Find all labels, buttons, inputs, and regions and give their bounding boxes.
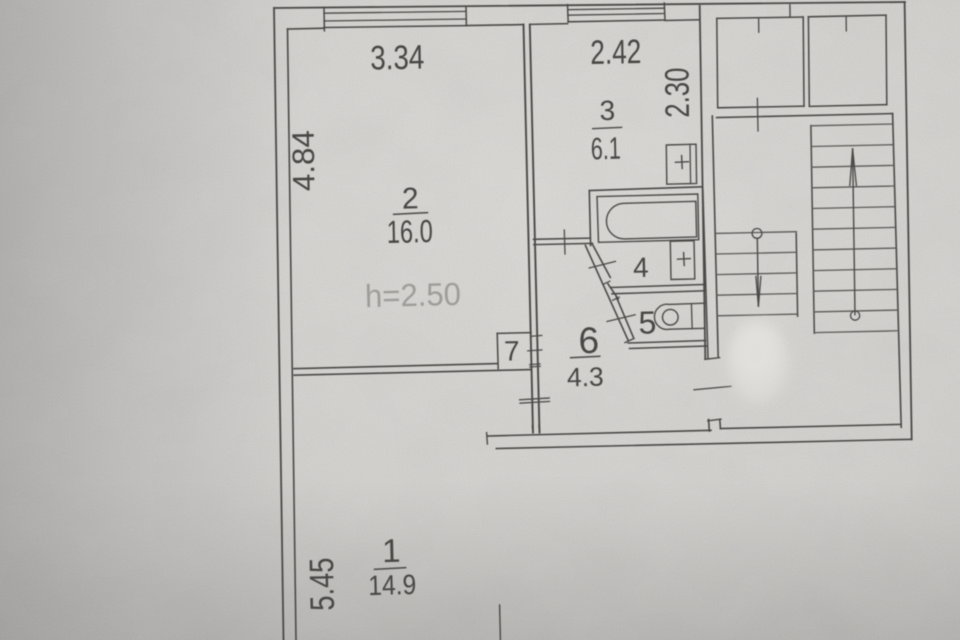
- svg-text:4.84: 4.84: [286, 130, 322, 192]
- svg-text:16.0: 16.0: [386, 213, 433, 250]
- svg-text:4: 4: [633, 252, 649, 283]
- svg-text:6.1: 6.1: [590, 131, 621, 167]
- svg-text:2.42: 2.42: [590, 33, 642, 72]
- svg-text:2.30: 2.30: [658, 67, 697, 117]
- svg-text:3.34: 3.34: [370, 39, 425, 78]
- svg-text:2: 2: [402, 182, 419, 215]
- svg-text:1: 1: [382, 532, 401, 569]
- svg-text:5.45: 5.45: [303, 557, 342, 611]
- svg-text:6: 6: [578, 320, 599, 361]
- svg-text:7: 7: [504, 335, 520, 366]
- svg-text:3: 3: [599, 95, 615, 126]
- svg-text:5: 5: [638, 304, 657, 340]
- svg-text:14.9: 14.9: [368, 569, 417, 601]
- svg-text:h=2.50: h=2.50: [365, 276, 462, 314]
- svg-text:4.3: 4.3: [567, 362, 604, 393]
